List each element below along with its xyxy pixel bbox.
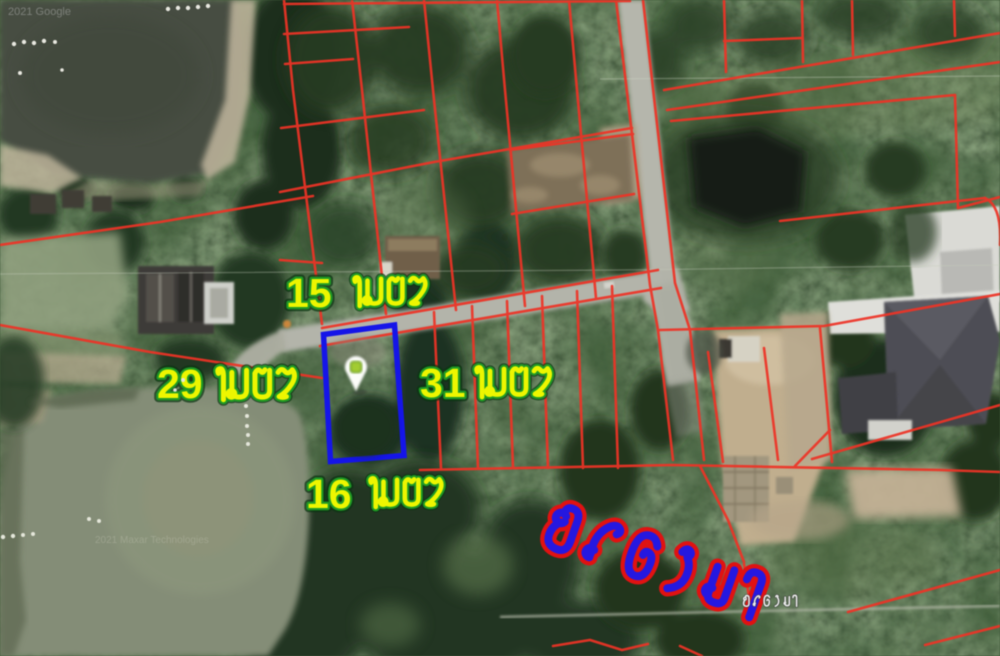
svg-text:2021 Google: 2021 Google [8,6,71,18]
svg-text:29: 29 [157,361,203,407]
svg-text:15: 15 [286,270,332,316]
svg-text:31: 31 [420,360,466,406]
svg-text:16: 16 [306,471,352,517]
svg-text:2021 Maxar Technologies: 2021 Maxar Technologies [95,535,209,546]
